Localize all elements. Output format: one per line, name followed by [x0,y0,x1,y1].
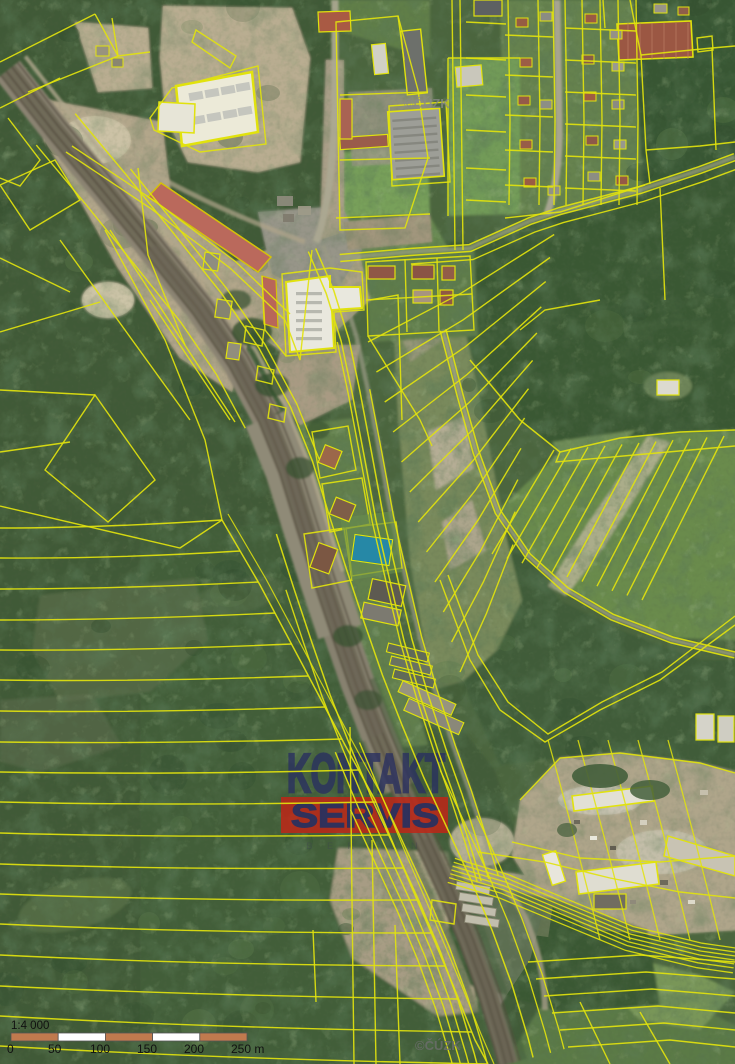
svg-text:©ČÚZK: ©ČÚZK [415,1038,461,1053]
svg-text:250 m: 250 m [231,1042,264,1056]
svg-text:50: 50 [48,1042,62,1056]
svg-text:150: 150 [137,1042,157,1056]
svg-text:200: 200 [184,1042,204,1056]
svg-text:1:4 000: 1:4 000 [11,1020,49,1032]
svg-text:0: 0 [7,1042,14,1056]
svg-text:100: 100 [90,1042,110,1056]
svg-text:©ČÚZK: ©ČÚZK [404,96,450,111]
